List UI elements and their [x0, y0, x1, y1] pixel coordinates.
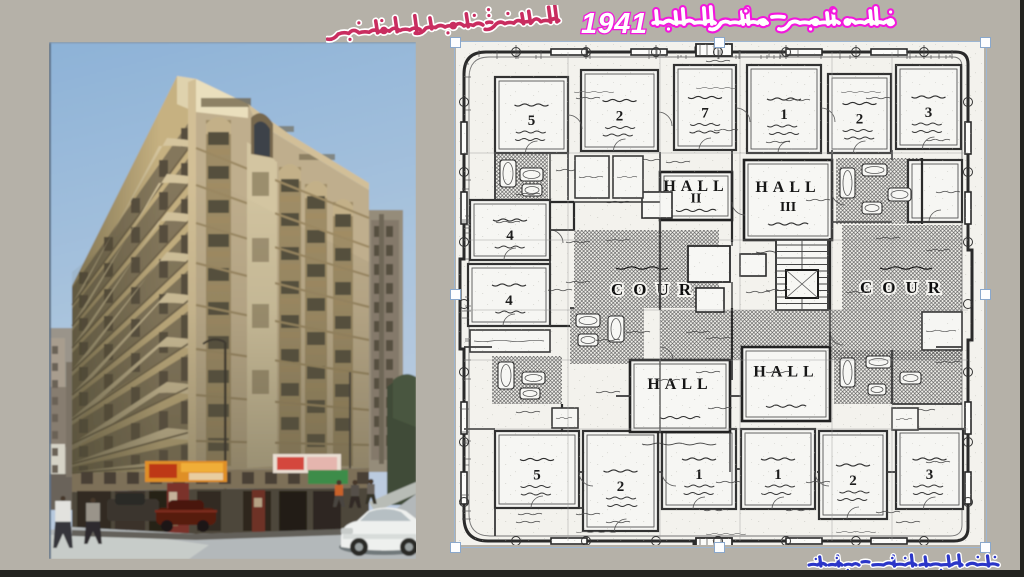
svg-text:1941: 1941	[581, 8, 648, 40]
